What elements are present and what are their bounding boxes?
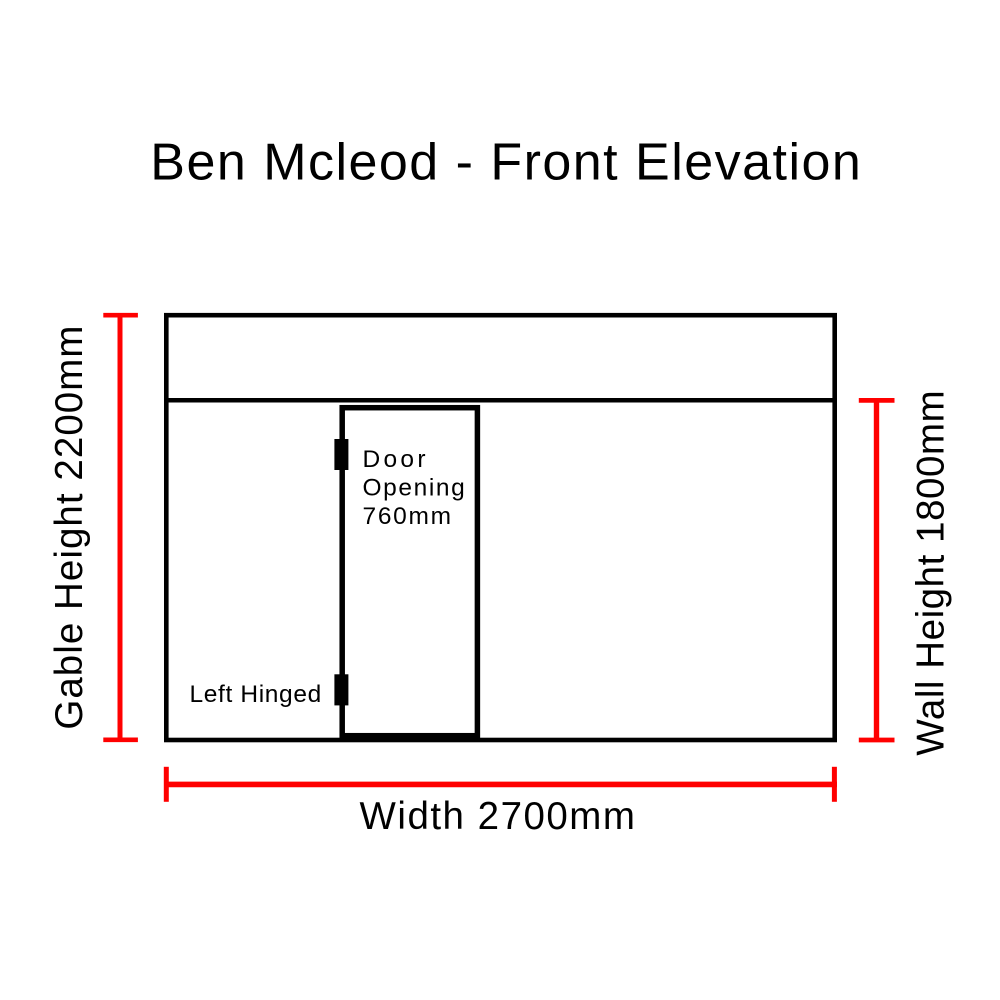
svg-text:760mm: 760mm [363, 503, 453, 530]
svg-text:Opening: Opening [363, 474, 467, 501]
svg-text:Door: Door [363, 446, 429, 473]
svg-text:Ben Mcleod - Front Elevation: Ben Mcleod - Front Elevation [150, 134, 862, 192]
svg-text:Width 2700mm: Width 2700mm [360, 795, 637, 838]
svg-text:Gable Height 2200mm: Gable Height 2200mm [48, 325, 91, 730]
svg-text:Left Hinged: Left Hinged [190, 681, 322, 708]
svg-text:Wall Height 1800mm: Wall Height 1800mm [910, 390, 953, 756]
